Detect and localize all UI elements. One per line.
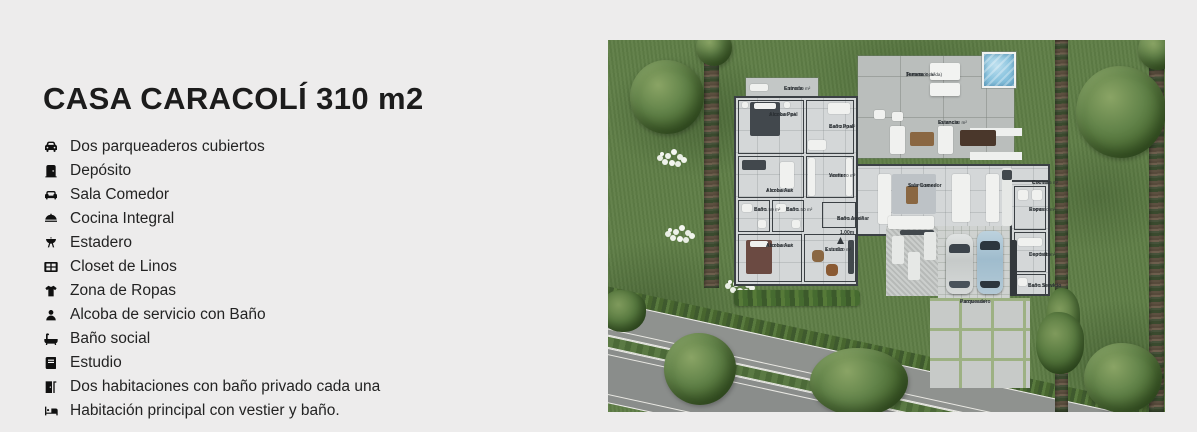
feature-label: Dos habitaciones con baño privado cada u… xyxy=(70,378,380,396)
feature-item: Dos habitaciones con baño privado cada u… xyxy=(43,375,588,399)
feature-label: Cocina Integral xyxy=(70,210,174,228)
feature-item: Sala Comedor xyxy=(43,183,588,207)
grill-icon xyxy=(43,235,59,251)
feature-item: Depósito xyxy=(43,159,588,183)
tshirt-icon xyxy=(43,283,59,299)
door-icon xyxy=(43,163,59,179)
feature-label: Habitación principal con vestier y baño. xyxy=(70,402,340,420)
feature-label: Depósito xyxy=(70,162,131,180)
page-title: CASA CARACOLÍ 310 m2 xyxy=(43,82,588,116)
feature-list: Dos parqueaderos cubiertos Depósito Sala… xyxy=(43,135,588,423)
feature-label: Baño social xyxy=(70,330,150,348)
sofa-icon xyxy=(43,187,59,203)
person-icon xyxy=(43,307,59,323)
feature-item: Alcoba de servicio con Baño xyxy=(43,303,588,327)
feature-item: Habitación principal con vestier y baño. xyxy=(43,399,588,423)
feature-label: Closet de Linos xyxy=(70,258,177,276)
cloche-icon xyxy=(43,211,59,227)
feature-item: Estadero xyxy=(43,231,588,255)
feature-item: Closet de Linos xyxy=(43,255,588,279)
feature-label: Zona de Ropas xyxy=(70,282,176,300)
property-summary: CASA CARACOLÍ 310 m2 Dos parqueaderos cu… xyxy=(43,82,588,423)
book-icon xyxy=(43,355,59,371)
feature-item: Baño social xyxy=(43,327,588,351)
floor-plan-labels: Terraza10.55*4.00 m²(Área no incluida)En… xyxy=(608,40,1165,412)
feature-item: Cocina Integral xyxy=(43,207,588,231)
floor-plan: Terraza10.55*4.00 m²(Área no incluida)En… xyxy=(608,40,1165,412)
feature-item: Estudio xyxy=(43,351,588,375)
feature-label: Estudio xyxy=(70,354,122,372)
feature-label: Sala Comedor xyxy=(70,186,169,204)
car-icon xyxy=(43,139,59,155)
bed-icon xyxy=(43,403,59,419)
bathtub-icon xyxy=(43,331,59,347)
grid-icon xyxy=(43,259,59,275)
doorway-icon xyxy=(43,379,59,395)
feature-label: Dos parqueaderos cubiertos xyxy=(70,138,265,156)
feature-label: Estadero xyxy=(70,234,132,252)
feature-label: Alcoba de servicio con Baño xyxy=(70,306,266,324)
feature-item: Zona de Ropas xyxy=(43,279,588,303)
feature-item: Dos parqueaderos cubiertos xyxy=(43,135,588,159)
